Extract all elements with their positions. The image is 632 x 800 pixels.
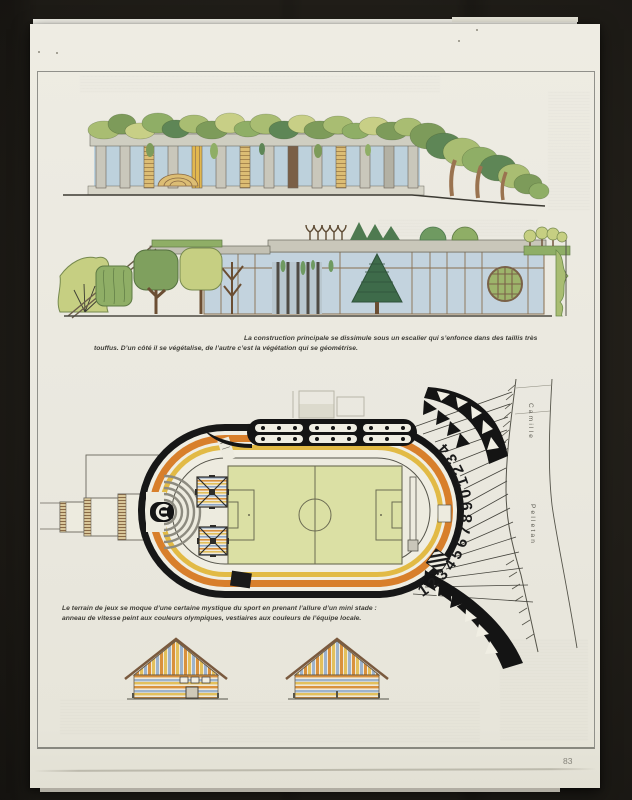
parasol [197, 525, 229, 557]
scanned-magazine-page: 12345678901234 Camille Pelletan [0, 0, 632, 800]
illustration-layer: 12345678901234 Camille Pelletan [0, 0, 632, 800]
street-label-camille: Camille [527, 403, 534, 440]
caption-lower-line2: anneau de vitesse peint aux couleurs oly… [62, 614, 377, 624]
window [191, 677, 199, 683]
sheet-edge-bottom [40, 788, 560, 792]
window [202, 677, 210, 683]
caption-lower-line1: Le terrain de jeux se moque d’une certai… [62, 604, 377, 614]
elevation-drawing-middle [58, 222, 570, 318]
roof-pines [350, 222, 400, 240]
vestiaire-elevation-right [286, 639, 389, 699]
poplar-trees [524, 227, 570, 255]
caption-upper-line2: touffus. D’un côté il se végétalise, de … [94, 344, 537, 354]
street [501, 379, 577, 652]
caption-upper: La construction principale se dissimule … [94, 334, 537, 353]
page-number: 83 [563, 756, 572, 766]
spiral-entry-badge [150, 502, 174, 522]
elevation-drawing-top [63, 113, 549, 206]
window [180, 677, 188, 683]
vestiaire-elevation-left [125, 639, 228, 699]
door [186, 687, 198, 698]
canopy-tree [134, 250, 178, 290]
football-field [228, 466, 402, 564]
espalier-row [306, 225, 346, 240]
street-label-pelletan: Pelletan [529, 504, 536, 545]
dome-tree [452, 227, 478, 240]
caption-lower: Le terrain de jeux se moque d’une certai… [62, 604, 377, 623]
dome-tree [420, 227, 446, 240]
canopy-tree [180, 248, 222, 290]
stadium-plan: 12345678901234 Camille Pelletan [40, 379, 577, 669]
street-name-labels: Camille Pelletan [527, 403, 536, 545]
track-box-right [438, 505, 451, 522]
parasol [195, 475, 229, 509]
caption-upper-line1: La construction principale se dissimule … [94, 334, 537, 344]
track-block-bottom [230, 571, 252, 589]
ground-line-top [63, 195, 545, 206]
round-window [488, 267, 522, 301]
